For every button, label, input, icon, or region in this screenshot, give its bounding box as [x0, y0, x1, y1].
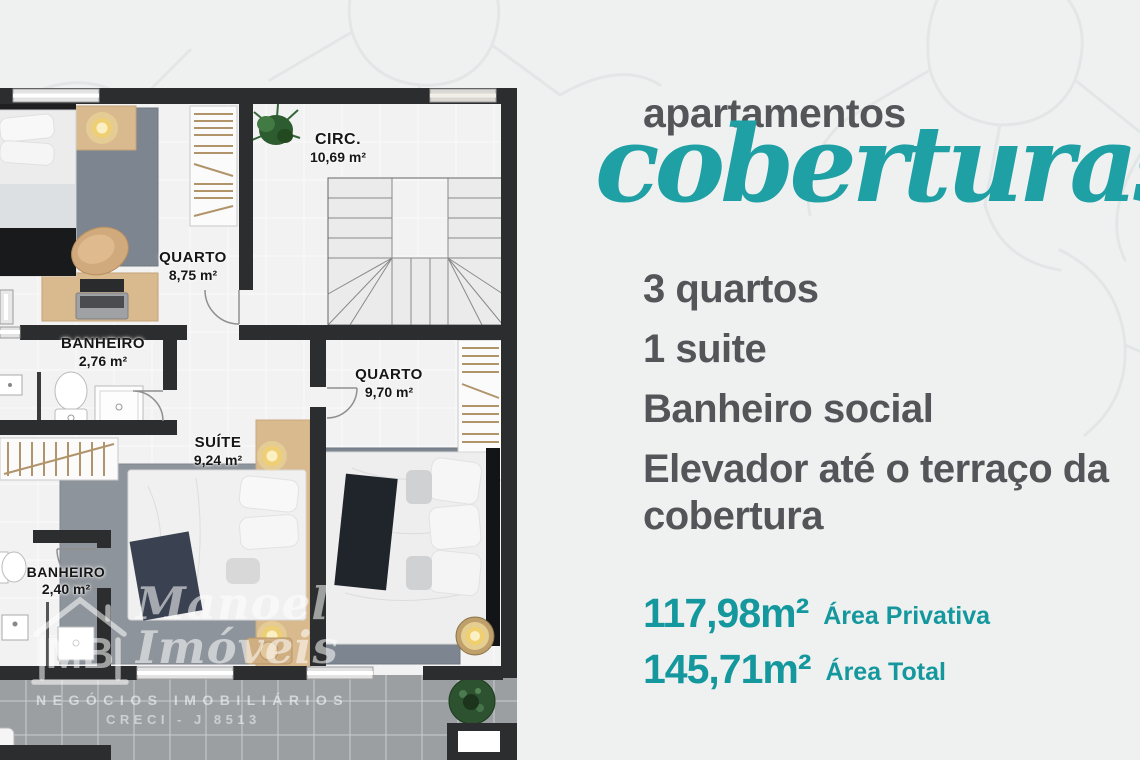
room-name: SUÍTE: [163, 434, 273, 452]
window: [13, 89, 99, 102]
pillow: [0, 113, 55, 143]
closet-hatch: [0, 438, 118, 480]
room-name: BANHEIRO: [11, 563, 121, 581]
shower: [58, 627, 94, 660]
pillow: [0, 140, 55, 166]
wardrobe-quarto-1: [190, 106, 237, 226]
bed-quarto-1: [0, 96, 76, 276]
window: [307, 667, 373, 679]
pillow: [427, 457, 482, 506]
room-name: QUARTO: [138, 249, 248, 267]
bed-quarto-2: [320, 448, 500, 646]
window: [137, 667, 233, 679]
room-label-quarto-1: QUARTO 8,75 m²: [138, 249, 248, 284]
pillow: [406, 470, 432, 504]
lamp-glow: [86, 112, 118, 144]
window: [0, 290, 13, 324]
lamp-glow: [456, 617, 494, 655]
pillow: [428, 550, 482, 597]
terrace-plant: [449, 678, 495, 724]
pillow: [406, 556, 432, 590]
room-label-suite: SUÍTE 9,24 m²: [163, 434, 273, 469]
room-area: 2,76 m²: [48, 353, 158, 370]
room-label-banheiro-2: BANHEIRO 2,40 m²: [11, 563, 121, 598]
sink: [2, 615, 28, 640]
desk-laptop: [76, 279, 128, 319]
room-label-circ: CIRC. 10,69 m²: [283, 131, 393, 166]
room-name: CIRC.: [283, 131, 393, 149]
toilet: [55, 372, 87, 410]
floor-plan-drawing: [0, 88, 517, 760]
poster-canvas: CIRC. 10,69 m² QUARTO 8,75 m² BANHEIRO 2…: [0, 0, 1140, 760]
shower-divider: [46, 602, 49, 674]
room-area: 2,40 m²: [11, 581, 121, 598]
window: [0, 327, 20, 338]
pillow: [226, 558, 260, 584]
bed-suite: [128, 470, 306, 621]
pillow: [428, 504, 481, 550]
room-area: 10,69 m²: [283, 149, 393, 166]
dark-throw: [0, 228, 76, 276]
laptop-screen: [80, 279, 124, 292]
room-name: QUARTO: [334, 366, 444, 384]
room-name: BANHEIRO: [48, 335, 158, 353]
pillow: [239, 514, 299, 550]
laptop-keyboard: [80, 296, 124, 308]
room-area: 9,70 m²: [334, 384, 444, 401]
room-area: 8,75 m²: [138, 267, 248, 284]
pillow: [238, 475, 299, 513]
headboard: [486, 448, 500, 646]
room-area: 9,24 m²: [163, 452, 273, 469]
room-label-quarto-2: QUARTO 9,70 m²: [334, 366, 444, 401]
room-label-banheiro-1: BANHEIRO 2,76 m²: [48, 335, 158, 370]
window: [430, 89, 496, 102]
floor-plan: [0, 88, 517, 760]
